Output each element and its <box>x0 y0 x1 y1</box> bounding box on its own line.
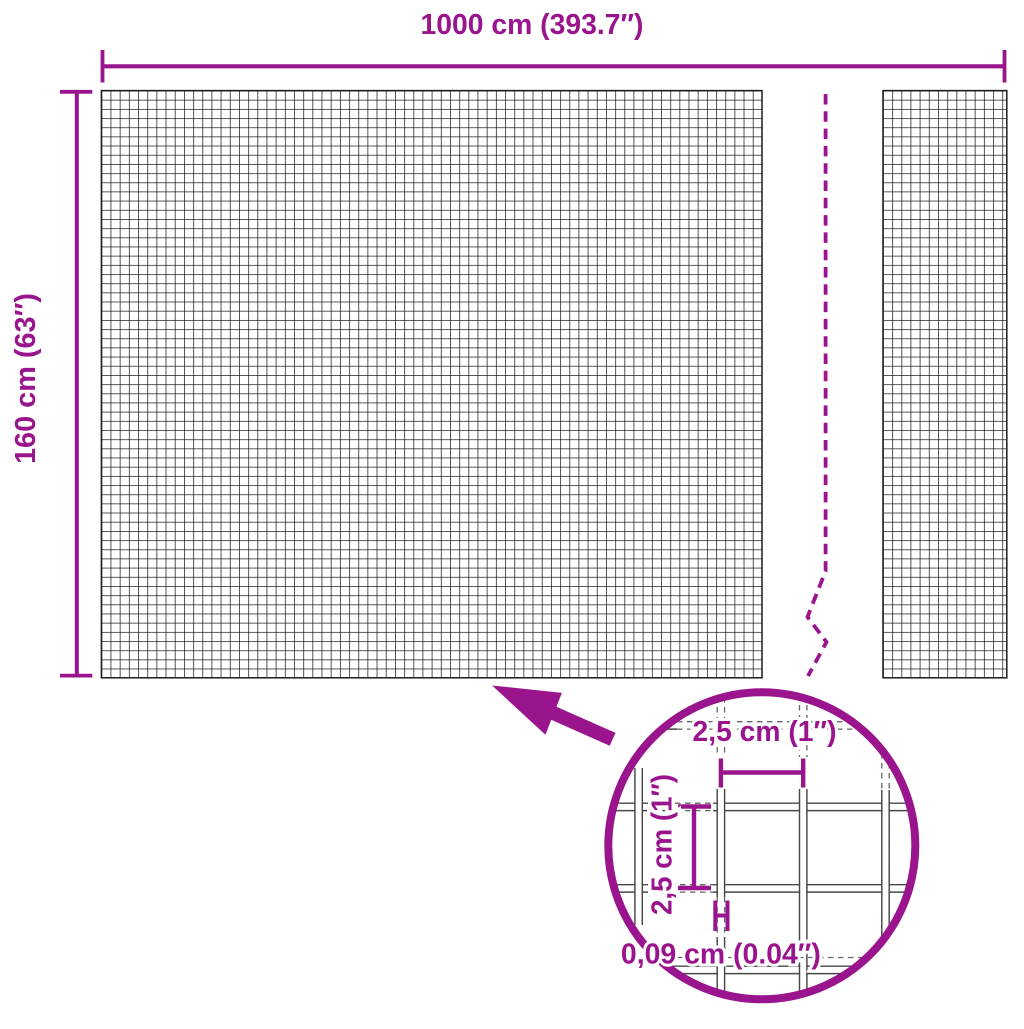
svg-text:2,5 cm (1″): 2,5 cm (1″) <box>693 716 837 748</box>
svg-text:160 cm (63″): 160 cm (63″) <box>10 293 42 464</box>
svg-text:1000 cm (393.7″): 1000 cm (393.7″) <box>421 9 644 41</box>
svg-text:2,5 cm (1″): 2,5 cm (1″) <box>647 774 679 915</box>
svg-text:0,09 cm (0.04″): 0,09 cm (0.04″) <box>621 939 821 971</box>
